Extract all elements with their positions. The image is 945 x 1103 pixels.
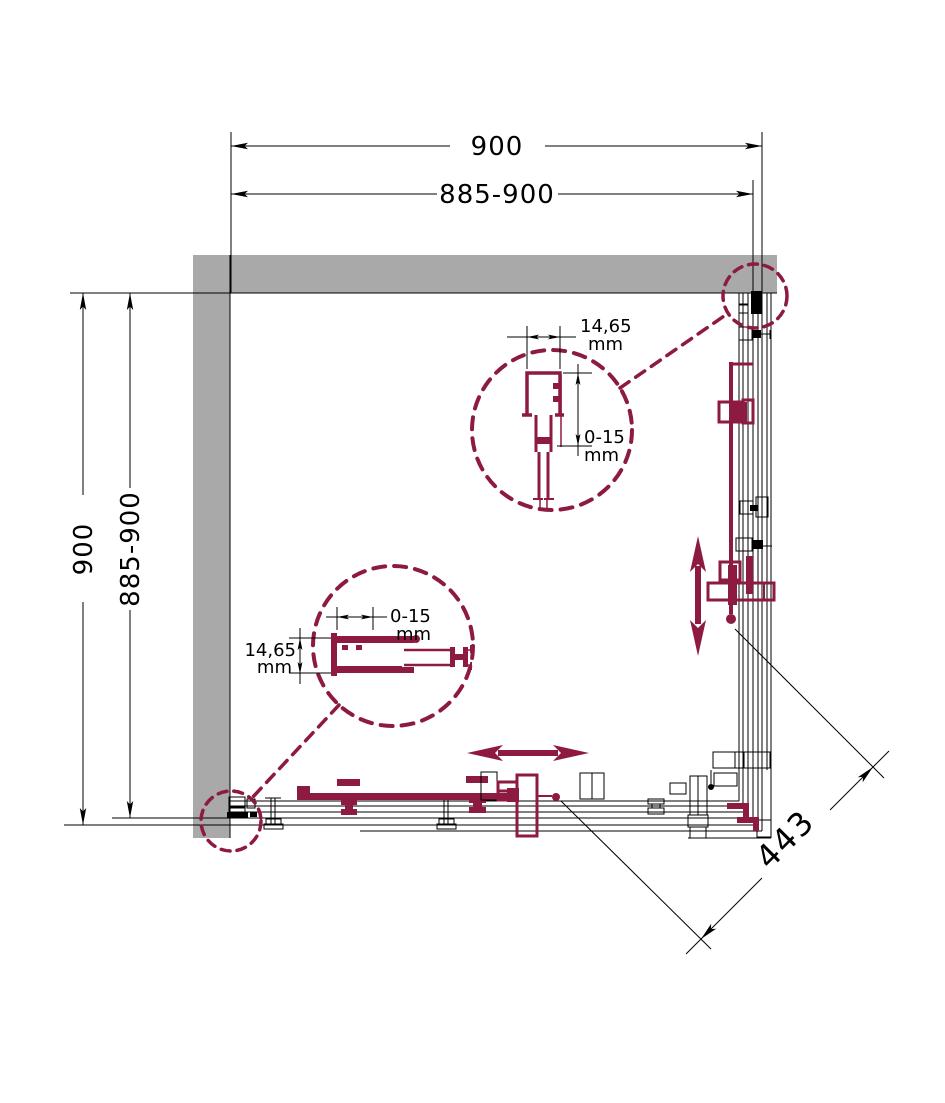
floor-bolt-left <box>264 798 283 829</box>
wall-profile-top-right <box>739 291 762 314</box>
walls <box>70 255 777 838</box>
dim-diagonal-label: 443 <box>748 802 822 876</box>
detail-top-width-unit: mm <box>588 334 623 355</box>
detail-callout-top: 14,65 mm 0-15 mm <box>472 316 632 511</box>
wall-top <box>193 255 777 293</box>
wall-left <box>193 255 230 838</box>
detail-leader-top <box>620 314 727 388</box>
bracket-bottom-mid <box>580 773 604 799</box>
dim-left-inner-label: 885-900 <box>116 491 146 607</box>
detail-leader-bottom <box>251 705 339 799</box>
door-edge-cap <box>552 793 560 801</box>
door-panel-bottom <box>297 786 560 801</box>
corner-connector-brackets <box>727 803 759 831</box>
detail-top-adjust-unit: mm <box>584 445 619 466</box>
detail-top-width-dim: 14,65 mm <box>507 316 632 369</box>
door-edge-cap <box>726 614 736 624</box>
shower-enclosure-plan-drawing: 900 885-900 900 885-900 <box>0 0 945 1103</box>
dim-top-inner-label: 885-900 <box>439 180 555 210</box>
arrow-down <box>690 620 706 656</box>
floor-bolt-mid <box>437 798 456 829</box>
detail-callout-bottom: 0-15 mm 14,65 mm <box>244 566 473 726</box>
detail-bottom-width-unit: mm <box>257 657 292 678</box>
dim-top-outer-label: 900 <box>471 132 524 162</box>
diagonal-extension-line-1 <box>735 629 884 778</box>
door-handle-bottom <box>481 772 537 836</box>
slide-direction-arrow-horizontal <box>467 745 589 761</box>
wall-profile-section-top <box>522 373 564 511</box>
wall-bracket-right-mid <box>740 497 768 517</box>
detail-bottom-adjust-unit: mm <box>396 624 431 645</box>
door-handle-right <box>708 556 774 605</box>
dim-diagonal: 443 <box>561 629 889 954</box>
slide-direction-arrow-vertical <box>690 536 706 656</box>
dim-left-outer-label: 900 <box>69 523 99 576</box>
arrow-left <box>467 745 503 761</box>
arrow-right <box>553 745 589 761</box>
drawing-canvas: 900 885-900 900 885-900 <box>0 0 945 1103</box>
